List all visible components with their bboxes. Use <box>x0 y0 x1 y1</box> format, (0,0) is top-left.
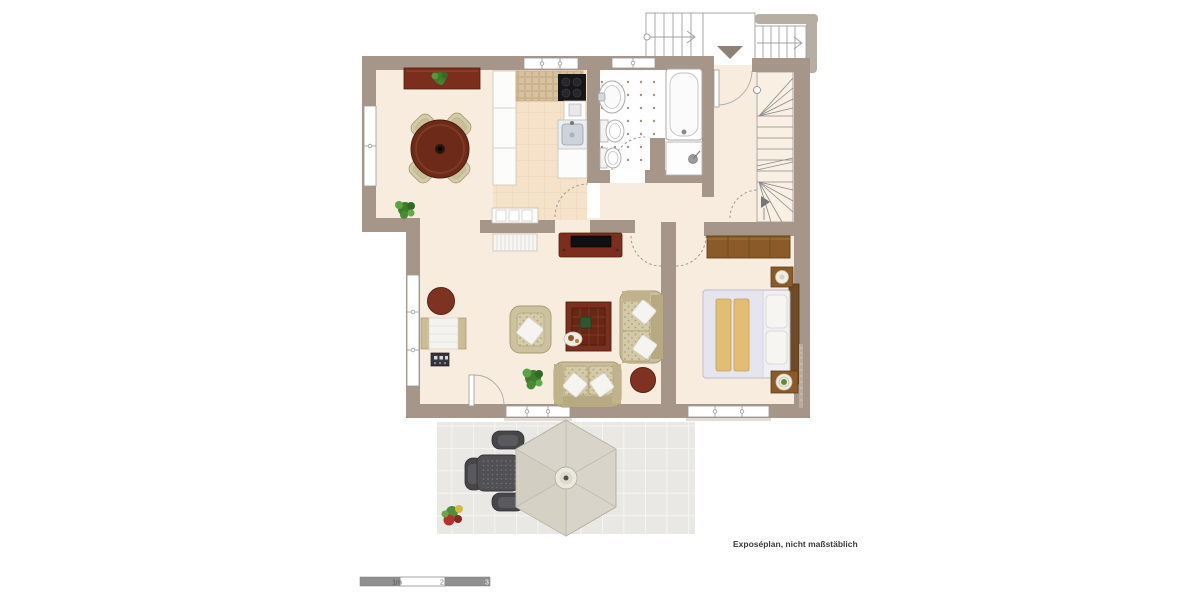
round-pouf <box>428 288 455 315</box>
scale-label-2: 2 <box>440 580 444 587</box>
round-side-table <box>631 368 656 393</box>
tub-faucet-icon <box>682 130 687 135</box>
tv-icon <box>571 236 611 247</box>
window-living-left <box>407 275 419 386</box>
window-sill <box>686 418 771 421</box>
wardrobe <box>707 236 790 258</box>
window-living-bottom <box>506 406 570 417</box>
wall-bath-bottom-a <box>600 170 610 183</box>
stair-flight-left <box>644 13 703 61</box>
double-bed <box>703 284 799 384</box>
window-sill <box>504 418 572 421</box>
sideboard <box>404 68 480 89</box>
window-bedroom-bottom <box>688 406 769 417</box>
bathtub <box>666 69 702 140</box>
scale-segment-light <box>400 577 445 586</box>
nightstand-north <box>771 267 793 287</box>
terrace-chair <box>492 431 524 449</box>
radiator <box>493 234 537 251</box>
pillow <box>766 331 787 364</box>
faucet-icon <box>570 121 574 125</box>
disclaimer-note: Exposéplan, nicht maßstäblich <box>733 539 858 549</box>
wall-bath-hall <box>702 65 714 197</box>
wall-hall-bedroom <box>704 222 810 236</box>
wall-shower-stub <box>650 138 665 172</box>
coffee-table <box>564 302 611 351</box>
basin-faucet-icon <box>598 93 605 101</box>
tv-lowboard <box>559 233 622 257</box>
bidet <box>600 148 621 168</box>
plant-pot-icon <box>781 379 787 385</box>
floor-plan-drawing: 1m 2 3 Exposéplan, nicht maßstäblich <box>0 0 1200 600</box>
loveseat-bottom <box>554 362 621 407</box>
blanket <box>716 299 731 371</box>
scale-label-3: 3 <box>485 580 489 587</box>
interior-winder-staircase <box>754 72 794 222</box>
window-bathroom <box>612 58 655 68</box>
armchair <box>510 306 551 353</box>
parasol-pole-icon <box>564 476 569 481</box>
kitchen-sink <box>558 120 587 149</box>
toilet <box>600 120 624 142</box>
nightstand-south <box>771 371 798 393</box>
pillow <box>766 295 787 328</box>
bistro-table <box>477 455 519 491</box>
stove <box>558 74 586 101</box>
window-dining-left <box>364 106 376 186</box>
scale-label-1m: 1m <box>392 580 402 587</box>
newel-post <box>754 87 761 94</box>
scale-segment-dark <box>445 577 490 586</box>
white-sideboard <box>492 208 538 223</box>
kitchen-counter-left <box>493 71 516 185</box>
scale-bar: 1m 2 3 <box>360 577 490 587</box>
stair-flight-right <box>755 26 806 62</box>
floor-plan-page: 1m 2 3 Exposéplan, nicht maßstäblich <box>0 0 1200 600</box>
stereo <box>431 353 449 366</box>
daybed <box>421 318 466 349</box>
kitchen-base-cabinet <box>558 149 587 178</box>
kitchen-appliance <box>564 101 586 120</box>
wall-watermark-text <box>799 344 803 408</box>
blanket <box>734 299 749 371</box>
wall-kitchen-bath <box>587 70 600 183</box>
loveseat-right <box>620 291 663 363</box>
shower <box>666 142 702 175</box>
wall-kitchen-living-b <box>590 220 635 233</box>
window-kitchen <box>524 58 578 69</box>
hall-lower-floor <box>600 183 702 222</box>
round-dining-table <box>411 120 469 178</box>
headboard <box>789 284 799 384</box>
